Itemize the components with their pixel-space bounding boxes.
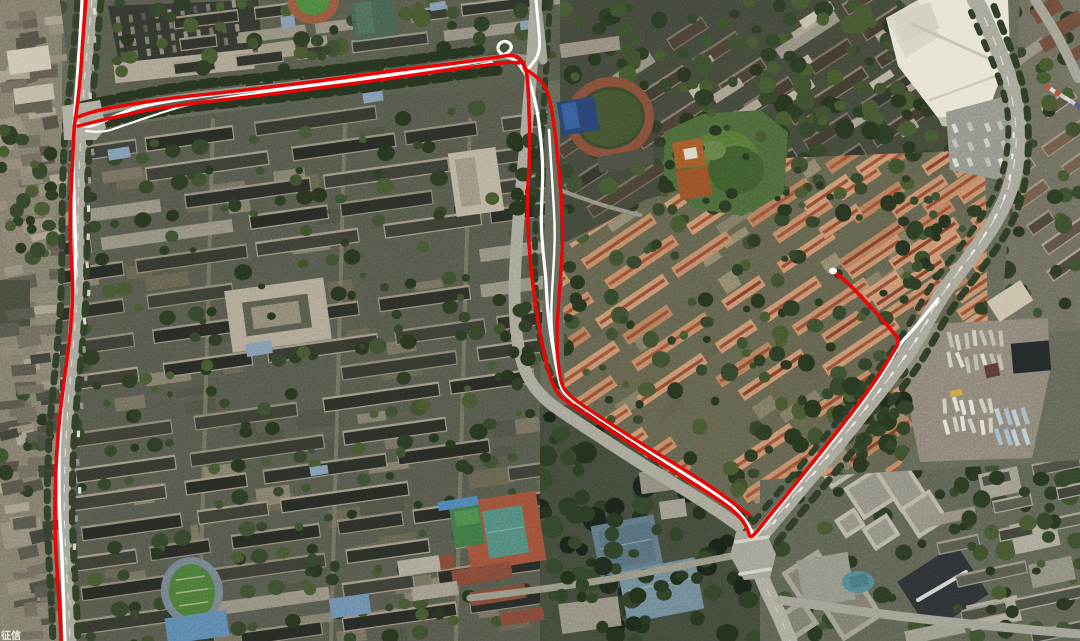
svg-text:征信: 征信	[1, 629, 21, 641]
